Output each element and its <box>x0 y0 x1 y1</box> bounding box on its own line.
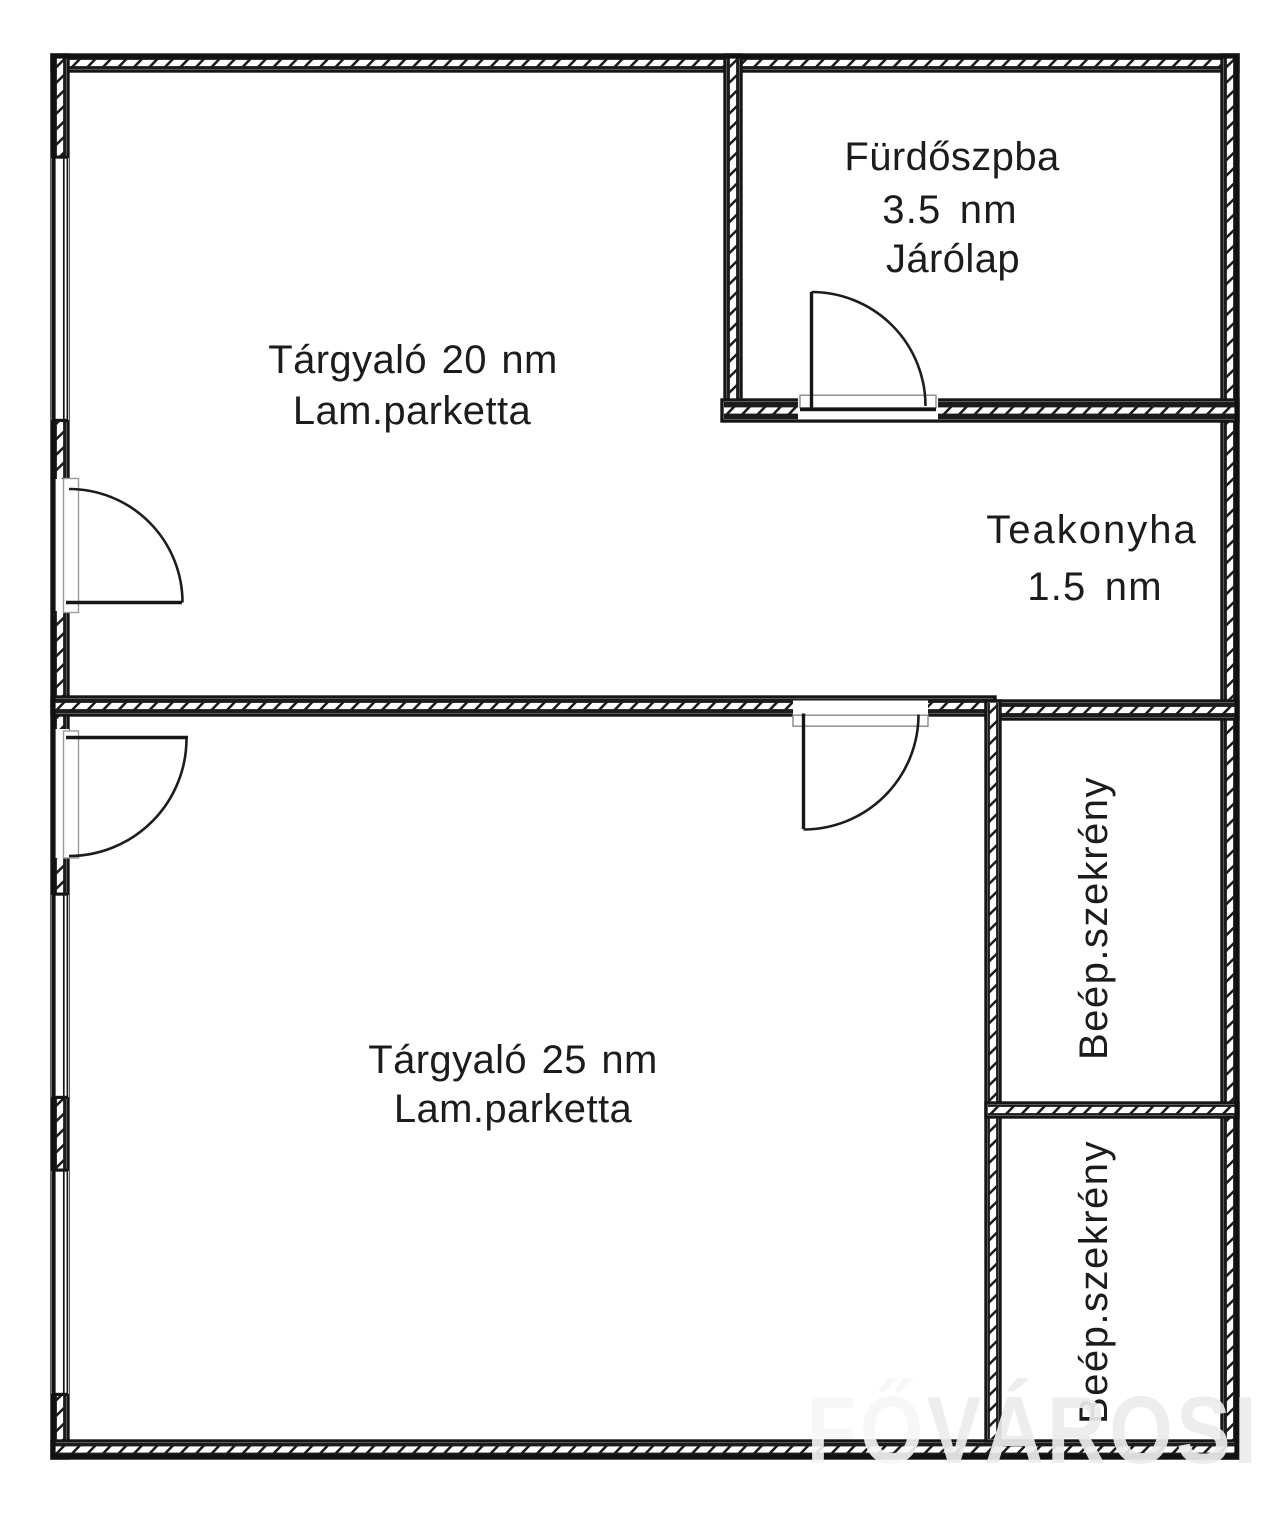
svg-text:1.5 nm: 1.5 nm <box>1027 565 1163 609</box>
svg-text:Fürdőszpba: Fürdőszpba <box>844 135 1060 179</box>
svg-text:Lam.parketta: Lam.parketta <box>293 389 532 433</box>
svg-text:FŐVÁROSI: FŐVÁROSI <box>807 1376 1260 1484</box>
svg-text:Lam.parketta: Lam.parketta <box>394 1087 633 1131</box>
svg-text:Tárgyaló 20 nm: Tárgyaló 20 nm <box>268 338 558 382</box>
svg-text:Beép.szekrény: Beép.szekrény <box>1072 776 1116 1060</box>
svg-text:3.5 nm: 3.5 nm <box>882 188 1018 232</box>
svg-text:Tárgyaló 25 nm: Tárgyaló 25 nm <box>368 1038 658 1082</box>
svg-text:Járólap: Járólap <box>886 237 1020 281</box>
svg-text:Teakonyha: Teakonyha <box>986 508 1197 552</box>
